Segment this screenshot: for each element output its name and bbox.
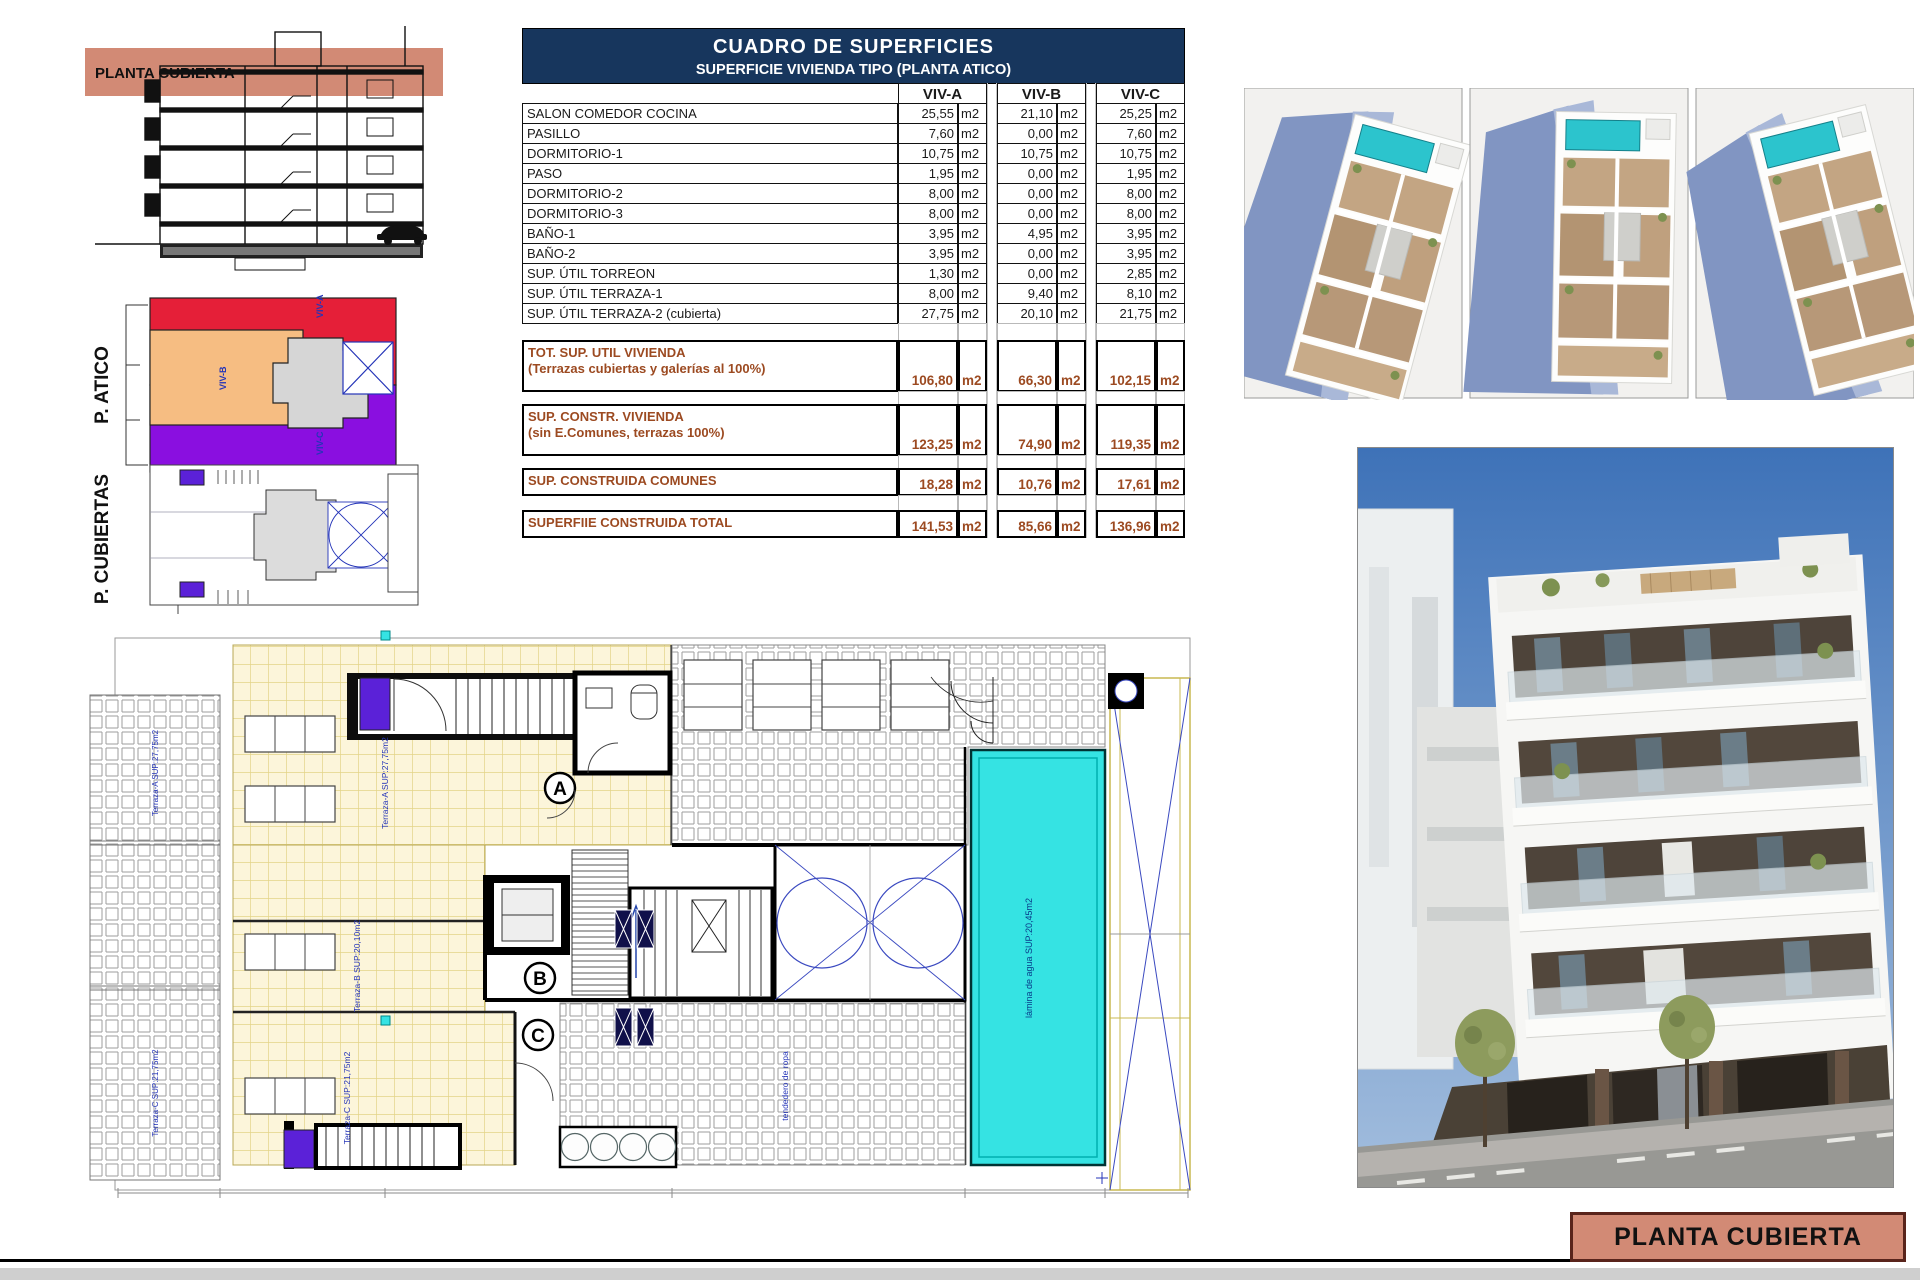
surface-table-header: CUADRO DE SUPERFICIES SUPERFICIE VIVIEND… bbox=[522, 28, 1185, 84]
table-row: BAÑO-2 3,95m2 0,00m2 3,95m2 bbox=[522, 243, 1185, 264]
table-spacer-row bbox=[522, 323, 1185, 341]
core-solarium bbox=[775, 845, 965, 1000]
footer-rule bbox=[0, 1259, 1572, 1262]
building-section-drawing: PLANTA CUBIERTA bbox=[85, 18, 450, 283]
col-header-viv-c: VIV-C bbox=[1096, 83, 1185, 104]
atico-viv-c-label: VIV-C bbox=[315, 431, 325, 455]
total-label: SUPERFIIE CONSTRUIDA TOTAL bbox=[528, 515, 896, 531]
total-label: SUP. CONSTRUIDA COMUNES bbox=[528, 473, 896, 489]
table-spacer-row bbox=[522, 455, 1185, 469]
roof-torreon bbox=[1778, 533, 1850, 567]
plan-left-terrace-strip: Terraza-A SUP:27,75m2 Terraza-C SUP:21,7… bbox=[90, 695, 220, 1180]
facade-render bbox=[1357, 447, 1894, 1188]
table-subtitle: SUPERFICIE VIVIENDA TIPO (PLANTA ATICO) bbox=[523, 59, 1184, 83]
atico-viv-a-label: VIV-A bbox=[315, 294, 325, 318]
table-total-row: SUPERFIIE CONSTRUIDA TOTAL 141,53m2 85,6… bbox=[522, 510, 1185, 538]
pool-label: lámina de agua SUP:20,45m2 bbox=[1024, 898, 1034, 1018]
table-row: PASO 1,95m2 0,00m2 1,95m2 bbox=[522, 163, 1185, 184]
atico-plan-areas bbox=[150, 298, 396, 472]
table-spacer-row bbox=[522, 495, 1185, 511]
roof-render-1 bbox=[1244, 88, 1474, 400]
col-header-viv-b: VIV-B bbox=[997, 83, 1086, 104]
atico-key-plan: P. ATICO VIV-A VIV-B VIV-C bbox=[88, 290, 408, 482]
plan-round-tubs bbox=[560, 1127, 676, 1167]
architectural-sheet: PLANTA CUBIERTA bbox=[0, 0, 1920, 1280]
plan-bathroom bbox=[575, 673, 670, 773]
plan-dimension-line bbox=[118, 1172, 1188, 1198]
table-column-header-row: VIV-A VIV-B VIV-C bbox=[522, 83, 1185, 104]
total-label: SUP. CONSTR. VIVIENDA bbox=[528, 409, 896, 425]
laundry-label: tendedero de ropa bbox=[780, 1051, 790, 1121]
table-total-row: SUP. CONSTR. VIVIENDA (sin E.Comunes, te… bbox=[522, 404, 1185, 456]
roof-render-3 bbox=[1661, 88, 1914, 400]
roof-floor-plan: Terraza-A SUP:27,75m2 Terraza-C SUP:21,7… bbox=[88, 538, 1198, 1198]
terraza-a-label: Terraza-A SUP:27,75m2 bbox=[380, 737, 390, 829]
table-row: SALON COMEDOR COCINA 25,55m2 21,10m2 25,… bbox=[522, 103, 1185, 124]
col-header-viv-a: VIV-A bbox=[898, 83, 987, 104]
cyan-tick-mid bbox=[381, 1016, 390, 1025]
plan-crossed-zone bbox=[1108, 673, 1190, 1190]
marker-c: C bbox=[531, 1026, 545, 1047]
table-row: SUP. ÚTIL TERRAZA-2 (cubierta) 27,75m2 2… bbox=[522, 303, 1185, 324]
total-label: TOT. SUP. UTIL VIVIENDA bbox=[528, 345, 896, 361]
atico-dim-bracket bbox=[126, 305, 148, 465]
surface-table: CUADRO DE SUPERFICIES SUPERFICIE VIVIEND… bbox=[522, 28, 1185, 538]
table-row: SUP. ÚTIL TORREON 1,30m2 0,00m2 2,85m2 bbox=[522, 263, 1185, 284]
section-ground-hatch bbox=[160, 244, 423, 270]
cyan-tick-top bbox=[381, 631, 390, 640]
table-title: CUADRO DE SUPERFICIES bbox=[523, 29, 1184, 59]
table-row: DORMITORIO-3 8,00m2 0,00m2 8,00m2 bbox=[522, 203, 1185, 224]
plan-pool: lámina de agua SUP:20,45m2 bbox=[965, 747, 1105, 1165]
terraza-c-label: Terraza-C SUP:21,75m2 bbox=[342, 1051, 352, 1144]
sheet-bottom-strip bbox=[0, 1268, 1920, 1280]
left-strip-label-a: Terraza-A SUP:27,75m2 bbox=[151, 729, 160, 816]
table-total-row: SUP. CONSTRUIDA COMUNES 18,28m2 10,76m2 … bbox=[522, 468, 1185, 496]
table-row: PASILLO 7,60m2 0,00m2 7,60m2 bbox=[522, 123, 1185, 144]
table-row: SUP. ÚTIL TERRAZA-1 8,00m2 9,40m2 8,10m2 bbox=[522, 283, 1185, 304]
atico-viv-b-label: VIV-B bbox=[218, 366, 228, 390]
table-row: DORMITORIO-2 8,00m2 0,00m2 8,00m2 bbox=[522, 183, 1185, 204]
atico-plan-title: P. ATICO bbox=[92, 346, 113, 424]
table-spacer-row bbox=[522, 391, 1185, 405]
roof-render-strip bbox=[1244, 88, 1914, 400]
roof-render-2 bbox=[1463, 88, 1688, 398]
plan-central-core bbox=[485, 845, 965, 1000]
sheet-title-box: PLANTA CUBIERTA bbox=[1570, 1212, 1906, 1262]
marker-a: A bbox=[553, 779, 567, 800]
terraza-b-label: Terraza-B SUP:20,10m2 bbox=[352, 920, 362, 1012]
left-strip-label-c: Terraza-C SUP:21,75m2 bbox=[151, 1049, 160, 1137]
table-total-row: TOT. SUP. UTIL VIVIENDA (Terrazas cubier… bbox=[522, 340, 1185, 392]
table-row: BAÑO-1 3,95m2 4,95m2 3,95m2 bbox=[522, 223, 1185, 244]
total-sublabel: (Terrazas cubiertas y galerías al 100%) bbox=[528, 361, 896, 377]
sheet-title: PLANTA CUBIERTA bbox=[1614, 1223, 1862, 1252]
car-icon bbox=[377, 226, 427, 245]
marker-b: B bbox=[533, 969, 547, 990]
total-sublabel: (sin E.Comunes, terrazas 100%) bbox=[528, 425, 896, 441]
table-row: DORMITORIO-1 10,75m2 10,75m2 10,75m2 bbox=[522, 143, 1185, 164]
